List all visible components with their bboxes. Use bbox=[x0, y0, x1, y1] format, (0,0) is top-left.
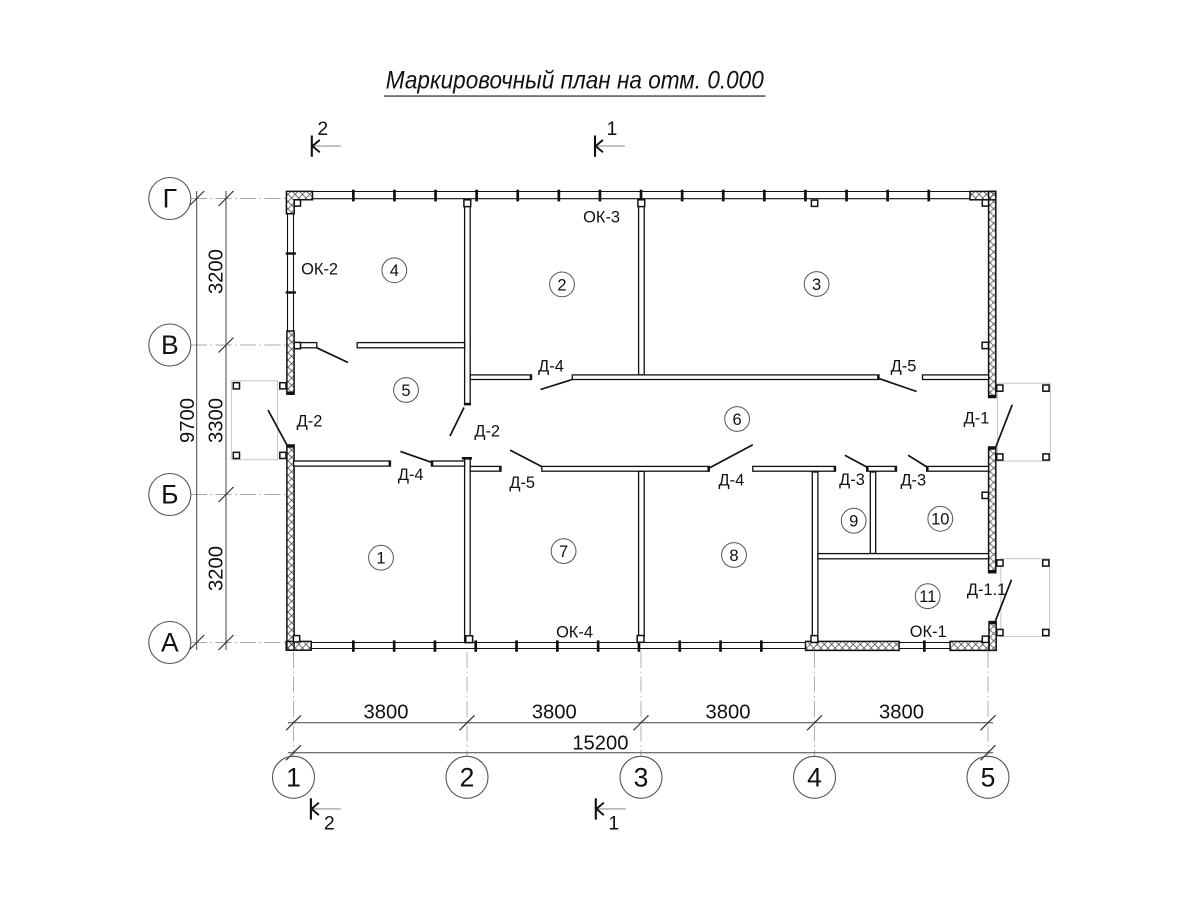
svg-text:15200: 15200 bbox=[572, 733, 628, 755]
svg-text:Д-5: Д-5 bbox=[891, 357, 917, 375]
svg-text:ОК-2: ОК-2 bbox=[301, 261, 338, 279]
svg-text:ОК-3: ОК-3 bbox=[583, 208, 620, 226]
svg-text:4: 4 bbox=[390, 262, 399, 280]
svg-text:1: 1 bbox=[286, 762, 301, 792]
svg-text:5: 5 bbox=[981, 762, 996, 792]
svg-text:2: 2 bbox=[324, 812, 335, 834]
svg-text:6: 6 bbox=[733, 411, 742, 429]
svg-text:3800: 3800 bbox=[532, 701, 577, 723]
svg-text:7: 7 bbox=[559, 543, 568, 561]
svg-text:4: 4 bbox=[807, 762, 822, 792]
svg-text:3200: 3200 bbox=[206, 546, 228, 591]
svg-text:2: 2 bbox=[317, 118, 328, 140]
svg-text:Д-1: Д-1 bbox=[964, 409, 990, 427]
svg-text:8: 8 bbox=[729, 547, 738, 565]
svg-text:Г: Г bbox=[163, 184, 177, 214]
svg-text:Д-5: Д-5 bbox=[509, 474, 535, 492]
svg-text:2: 2 bbox=[557, 276, 566, 294]
svg-text:Д-2: Д-2 bbox=[297, 412, 323, 430]
svg-text:1: 1 bbox=[606, 118, 617, 140]
svg-text:В: В bbox=[161, 330, 179, 360]
svg-text:Д-4: Д-4 bbox=[719, 471, 745, 489]
svg-text:2: 2 bbox=[460, 762, 475, 792]
svg-text:Б: Б bbox=[161, 480, 178, 510]
svg-text:9700: 9700 bbox=[177, 398, 199, 443]
svg-text:3200: 3200 bbox=[206, 249, 228, 294]
svg-text:3800: 3800 bbox=[879, 701, 924, 723]
svg-text:3300: 3300 bbox=[206, 398, 228, 443]
svg-text:Д-4: Д-4 bbox=[538, 357, 564, 375]
svg-text:Д-2: Д-2 bbox=[474, 423, 500, 441]
svg-text:9: 9 bbox=[849, 513, 858, 531]
svg-text:Маркировочный план на отм. 0.0: Маркировочный план на отм. 0.000 bbox=[386, 67, 764, 94]
svg-text:3: 3 bbox=[812, 276, 821, 294]
svg-text:5: 5 bbox=[401, 382, 410, 400]
svg-text:А: А bbox=[161, 628, 179, 658]
svg-text:11: 11 bbox=[919, 588, 936, 606]
svg-text:1: 1 bbox=[608, 812, 619, 834]
svg-text:Д-3: Д-3 bbox=[839, 471, 865, 489]
svg-text:Д-1.1: Д-1.1 bbox=[967, 581, 1006, 599]
svg-text:1: 1 bbox=[376, 550, 385, 568]
svg-text:Д-4: Д-4 bbox=[398, 466, 424, 484]
svg-text:ОК-4: ОК-4 bbox=[556, 623, 593, 641]
svg-text:3: 3 bbox=[634, 762, 649, 792]
svg-text:ОК-1: ОК-1 bbox=[910, 623, 947, 641]
svg-text:10: 10 bbox=[931, 511, 949, 529]
svg-text:Д-3: Д-3 bbox=[900, 471, 926, 489]
svg-text:3800: 3800 bbox=[364, 701, 409, 723]
svg-text:3800: 3800 bbox=[706, 701, 751, 723]
